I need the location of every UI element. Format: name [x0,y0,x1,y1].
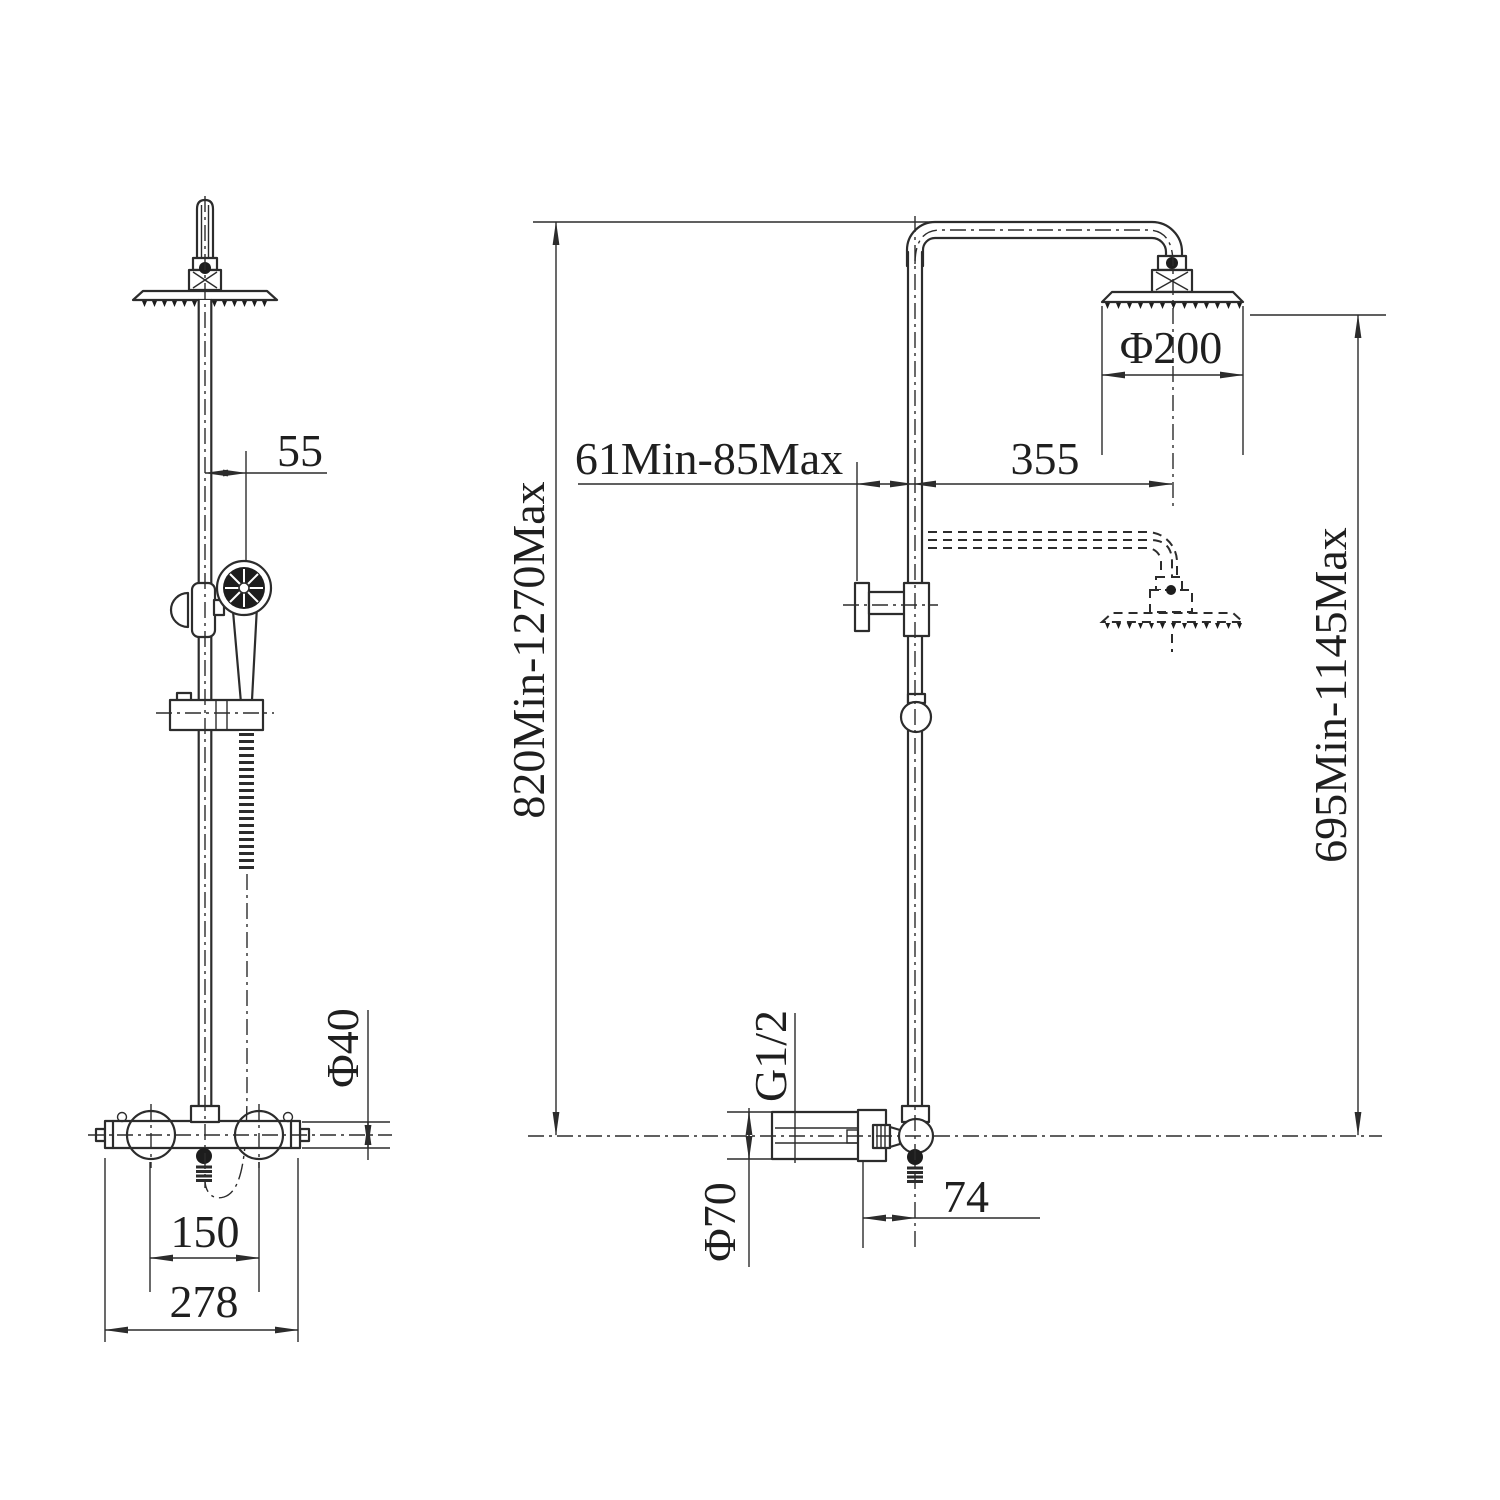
alternate-rain-head-dashed [1102,613,1243,622]
dim-label-head-diameter: Φ200 [1120,322,1223,373]
dimensions [105,222,1386,1342]
shower-hose-coil [239,731,254,873]
mixer-valve-side [772,1106,933,1182]
hand-shower-handle [233,606,257,703]
hand-shower [217,561,271,703]
alternate-arm-dashed [928,532,1243,652]
dim-label-overall-height-range: 820Min-1270Max [503,481,554,818]
wall-bracket-stem [869,592,906,614]
dim-label-head-height-range: 695Min-1145Max [1305,527,1356,863]
dim-label-valve-body-diameter: Φ40 [317,1008,368,1088]
dim-label-wall-clearance-range: 61Min-85Max [575,433,843,484]
side-centerlines [528,216,1382,1250]
dimension-labels: 55 Φ40 150 278 820Min-1270Max 61Min-85Ma… [170,322,1357,1327]
dim-label-hand-shower-offset: 55 [277,425,323,476]
technical-drawing: 55 Φ40 150 278 820Min-1270Max 61Min-85Ma… [0,0,1500,1500]
dim-label-outlet-offset: 74 [943,1171,989,1222]
side-head-connector [1152,256,1192,292]
dim-label-arm-projection: 355 [1011,433,1080,484]
dim-label-valve-diameter: Φ70 [694,1182,745,1262]
wall-bracket [855,583,929,636]
valve-outlet-front [196,1148,212,1164]
dim-label-connection-thread: G1/2 [745,1010,796,1102]
wall-bracket-flange [855,583,869,631]
wall-bracket-slider [904,583,929,636]
dim-label-inlet-center-spacing: 150 [171,1206,240,1257]
mixer-valve-front [96,1106,309,1181]
dim-label-valve-overall-width: 278 [170,1276,239,1327]
gooseneck-arm [907,222,1182,266]
side-holder-ball [901,694,931,732]
drawing-canvas: 55 Φ40 150 278 820Min-1270Max 61Min-85Ma… [0,0,1500,1500]
hand-shower-holder [171,583,224,637]
side-view [528,216,1382,1250]
